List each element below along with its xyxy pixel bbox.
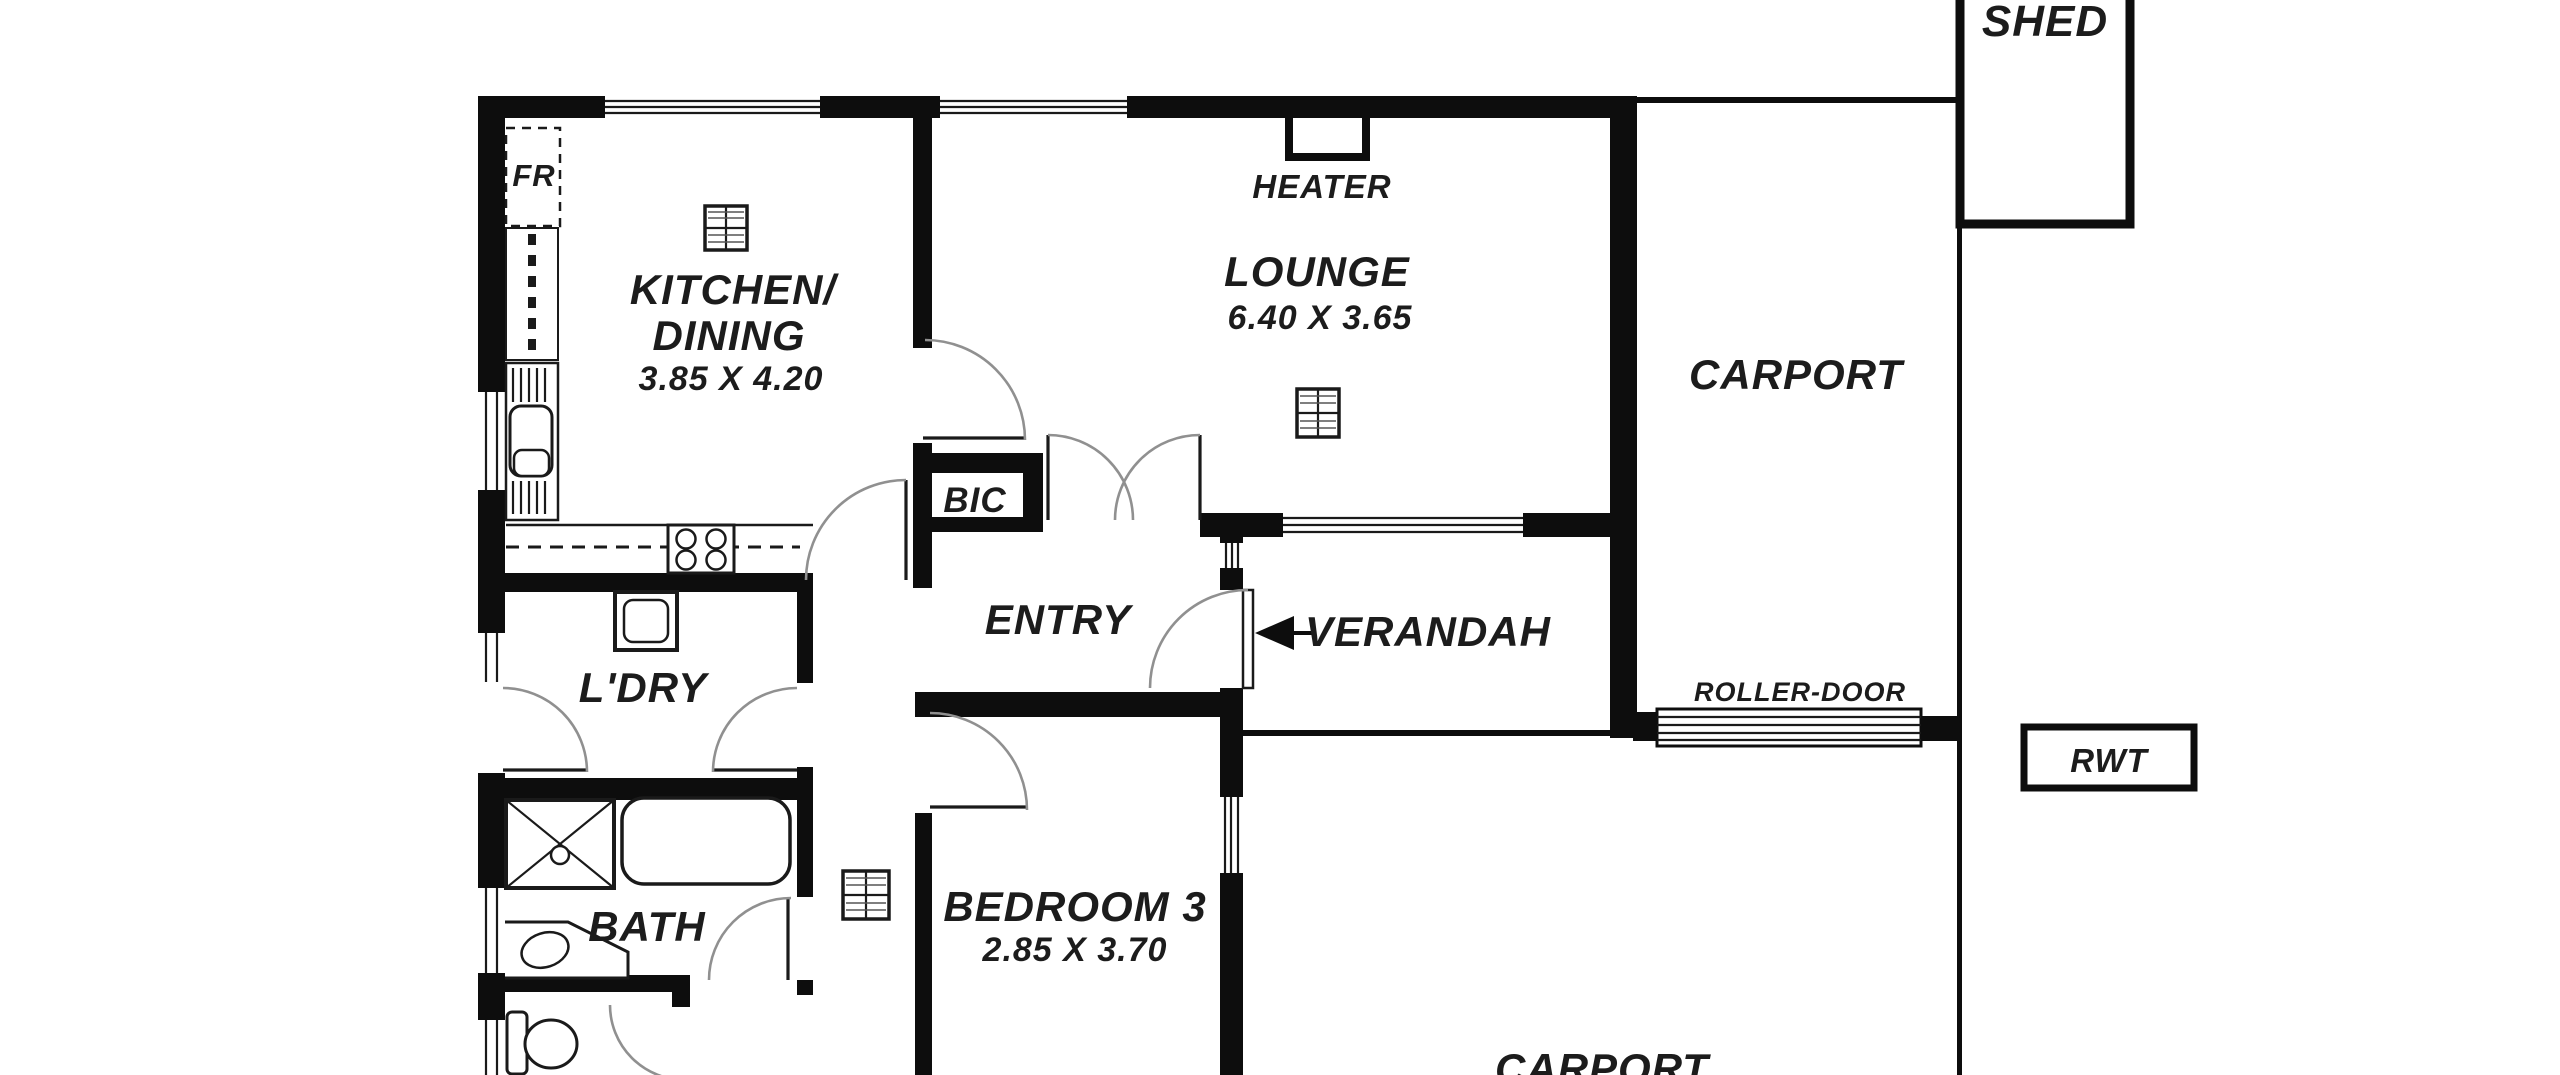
bedroom3-label: BEDROOM 3 bbox=[943, 883, 1206, 930]
toilet-door-jamb bbox=[672, 990, 690, 1007]
wall-left-seg1 bbox=[478, 96, 505, 392]
laundry-label: L'DRY bbox=[579, 664, 711, 711]
verandah-bottom-edge-line bbox=[1243, 730, 1610, 736]
lounge-window-icon bbox=[1297, 389, 1339, 437]
lounge-label: LOUNGE bbox=[1224, 248, 1411, 295]
fridge-label: FR bbox=[512, 158, 555, 193]
heater-bottom-side bbox=[1285, 153, 1370, 161]
shower-drain bbox=[551, 846, 569, 864]
entry-label: ENTRY bbox=[985, 596, 1135, 643]
front-door-leaf bbox=[1243, 590, 1253, 688]
wall-laundry-right-upper bbox=[797, 592, 813, 683]
sink-bowl-small bbox=[514, 450, 549, 476]
roller-door-left-cap bbox=[1633, 712, 1657, 741]
lounge-dims-label: 6.40 X 3.65 bbox=[1228, 299, 1413, 337]
floorplan-canvas: FR KITCHEN/ DINING 3.85 X 4.20 HEATER LO… bbox=[0, 0, 2560, 1075]
laundry-trough-bowl bbox=[624, 600, 668, 642]
bedroom3-dims-label: 2.85 X 3.70 bbox=[982, 931, 1168, 969]
wall-verandah-left-jamb bbox=[1220, 568, 1243, 590]
wall-bedroom3-right-lower bbox=[1220, 873, 1243, 1075]
wall-right bbox=[1610, 96, 1637, 738]
wall-laundry-right-lower bbox=[797, 767, 813, 778]
kitchen-label-line1: KITCHEN/ bbox=[630, 266, 840, 313]
roller-door-right-cap bbox=[1921, 716, 1962, 741]
wall-kitchen-bottom bbox=[478, 573, 813, 592]
roller-door bbox=[1633, 709, 1962, 746]
wall-left-seg2 bbox=[478, 490, 505, 633]
wall-bedroom3-left bbox=[915, 813, 932, 1075]
wall-bath-right-lower bbox=[797, 980, 813, 995]
boundary-line bbox=[1957, 224, 1962, 1075]
wall-kitchen-lounge-divider bbox=[913, 118, 932, 348]
rwt-label: RWT bbox=[2070, 742, 2149, 779]
heater-label: HEATER bbox=[1252, 168, 1391, 205]
bic-right-bar bbox=[1023, 453, 1043, 532]
hall-window-icon bbox=[843, 871, 889, 919]
shed-label: SHED bbox=[1982, 0, 2108, 46]
kitchen-dims-label: 3.85 X 4.20 bbox=[639, 360, 824, 398]
bath-label: BATH bbox=[588, 903, 706, 950]
kitchen-label-line2: DINING bbox=[653, 312, 806, 359]
carport-upper-label: CARPORT bbox=[1689, 351, 1905, 398]
toilet-bowl bbox=[525, 1020, 577, 1068]
wall-entry-bottom bbox=[915, 692, 1220, 717]
floorplan-page: FR KITCHEN/ DINING 3.85 X 4.20 HEATER LO… bbox=[0, 0, 2560, 1075]
kitchen-window-icon bbox=[705, 206, 747, 250]
carport-lower-label: CARPORT bbox=[1495, 1045, 1711, 1075]
wall-verandah-left-mid bbox=[1220, 688, 1243, 797]
verandah-label: VERANDAH bbox=[1305, 608, 1552, 655]
carport-top-edge-line bbox=[1637, 97, 1960, 103]
roller-door-label: ROLLER-DOOR bbox=[1694, 677, 1906, 707]
wall-bath-right-upper bbox=[797, 800, 813, 897]
bic-label: BIC bbox=[943, 481, 1006, 520]
bathtub bbox=[622, 798, 790, 884]
plan-background bbox=[0, 0, 2560, 1075]
